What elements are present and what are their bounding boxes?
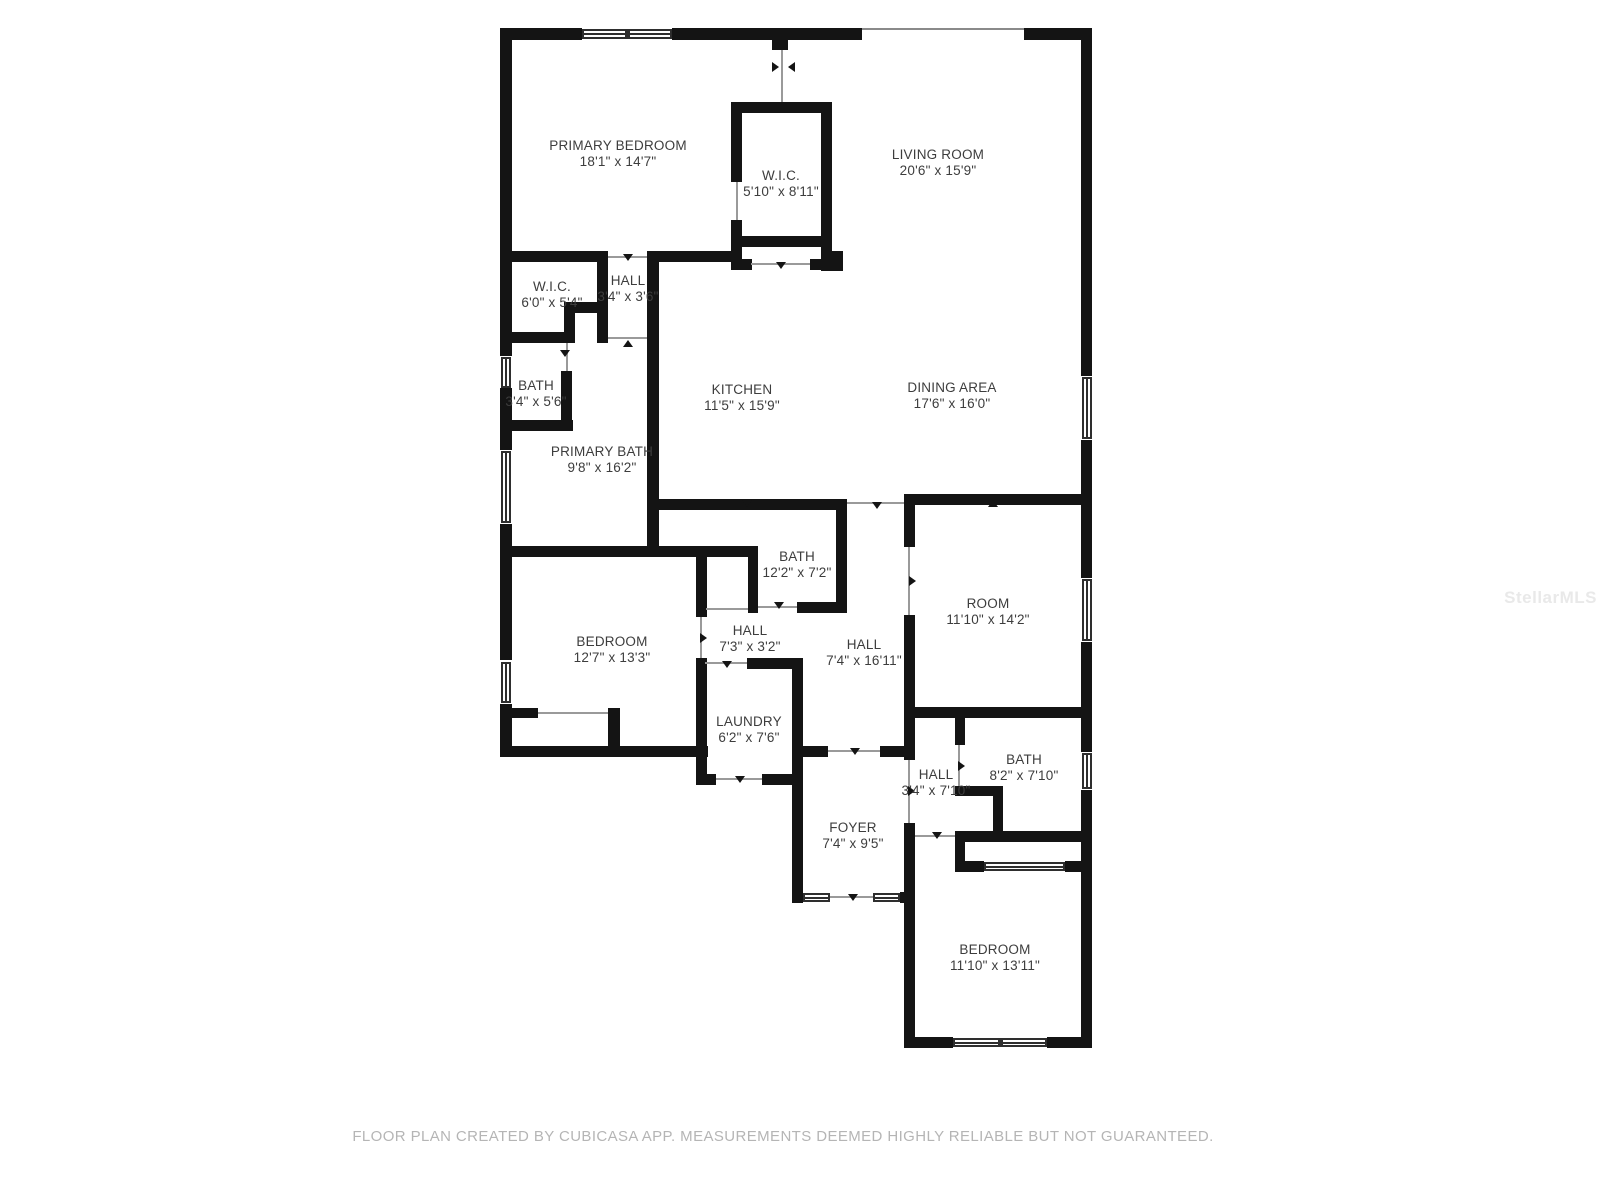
room-dimensions: 8'2" x 7'10" xyxy=(990,768,1059,784)
room-name: BATH xyxy=(763,549,832,565)
room-label-hall-long: HALL7'4" x 16'11" xyxy=(826,637,902,669)
room-label-bath-small: BATH3'4" x 5'6" xyxy=(505,378,566,410)
door-marker xyxy=(774,602,784,609)
wall xyxy=(672,28,862,40)
wall xyxy=(731,236,832,247)
wall xyxy=(647,251,742,262)
room-dimensions: 9'8" x 16'2" xyxy=(551,460,653,476)
room-name: PRIMARY BATH xyxy=(551,444,653,460)
room-name: BEDROOM xyxy=(950,942,1040,958)
room-label-bath-east: BATH8'2" x 7'10" xyxy=(990,752,1059,784)
room-dimensions: 6'0" x 5'4" xyxy=(521,295,582,311)
room-name: FOYER xyxy=(822,820,883,836)
door-opening xyxy=(781,50,783,102)
wall xyxy=(904,494,915,547)
room-dimensions: 6'2" x 7'6" xyxy=(716,730,782,746)
room-label-primary-bedroom: PRIMARY BEDROOM18'1" x 14'7" xyxy=(549,138,687,170)
room-dimensions: 17'6" x 16'0" xyxy=(907,396,996,412)
door-marker xyxy=(909,576,916,586)
door-marker xyxy=(932,832,942,839)
wall xyxy=(500,251,608,262)
wall xyxy=(500,524,512,660)
room-dimensions: 7'3" x 3'2" xyxy=(719,639,780,655)
door-marker xyxy=(788,62,795,72)
door-opening xyxy=(538,712,608,714)
wall xyxy=(1081,440,1092,578)
wall xyxy=(696,658,707,785)
room-name: BEDROOM xyxy=(574,634,651,650)
door-marker xyxy=(623,254,633,261)
door-marker xyxy=(988,500,998,507)
door-marker xyxy=(614,547,624,554)
wall xyxy=(500,708,538,718)
wall xyxy=(1081,790,1092,1048)
wall xyxy=(500,28,582,40)
wall xyxy=(500,746,708,757)
window-icon xyxy=(803,893,830,902)
room-name: ROOM xyxy=(946,596,1029,612)
door-marker xyxy=(872,502,882,509)
room-name: KITCHEN xyxy=(704,382,780,398)
room-dimensions: 3'4" x 7'10" xyxy=(902,783,971,799)
wall xyxy=(1081,642,1092,752)
wall xyxy=(955,707,965,745)
room-label-wic-primary: W.I.C.5'10" x 8'11" xyxy=(743,168,819,200)
door-marker xyxy=(560,350,570,357)
wall xyxy=(696,546,707,617)
room-label-room: ROOM11'10" x 14'2" xyxy=(946,596,1029,628)
wall xyxy=(797,602,847,613)
door-marker xyxy=(735,776,745,783)
room-name: W.I.C. xyxy=(521,279,582,295)
room-dimensions: 5'10" x 8'11" xyxy=(743,184,819,200)
room-name: BATH xyxy=(505,378,566,394)
room-label-bedroom-left: BEDROOM12'7" x 13'3" xyxy=(574,634,651,666)
wall xyxy=(748,547,758,613)
door-marker xyxy=(722,661,732,668)
room-label-wic-small: W.I.C.6'0" x 5'4" xyxy=(521,279,582,311)
room-name: W.I.C. xyxy=(743,168,819,184)
room-label-primary-bath: PRIMARY BATH9'8" x 16'2" xyxy=(551,444,653,476)
wall xyxy=(880,746,904,757)
watermark-stellar-mls: StellarMLS xyxy=(1504,588,1597,608)
wall xyxy=(792,892,803,903)
room-name: HALL xyxy=(902,767,971,783)
door-marker xyxy=(776,262,786,269)
room-dimensions: 12'2" x 7'2" xyxy=(763,565,832,581)
wall xyxy=(904,494,1092,505)
wall xyxy=(803,746,828,757)
wall xyxy=(731,102,742,182)
room-dimensions: 3'4" x 3'6" xyxy=(597,289,658,305)
wall xyxy=(731,102,832,113)
room-label-hall-small: HALL3'4" x 3'6" xyxy=(597,273,658,305)
door-opening xyxy=(736,182,738,220)
wall xyxy=(500,28,512,356)
door-marker xyxy=(623,340,633,347)
window-icon xyxy=(873,893,900,902)
door-marker xyxy=(850,748,860,755)
room-label-foyer: FOYER7'4" x 9'5" xyxy=(822,820,883,852)
wall xyxy=(900,892,915,903)
door-opening xyxy=(566,343,568,371)
wall xyxy=(696,658,705,669)
footer-disclaimer: FLOOR PLAN CREATED BY CUBICASA APP. MEAS… xyxy=(0,1128,1566,1145)
wall xyxy=(608,708,620,751)
room-label-bath-middle: BATH12'2" x 7'2" xyxy=(763,549,832,581)
room-name: LAUNDRY xyxy=(716,714,782,730)
door-opening xyxy=(706,608,748,610)
wall xyxy=(821,251,843,271)
room-dimensions: 20'6" x 15'9" xyxy=(892,163,984,179)
room-name: PRIMARY BEDROOM xyxy=(549,138,687,154)
wall-opening-band xyxy=(862,28,1024,40)
wall xyxy=(955,861,984,872)
door-marker xyxy=(700,633,707,643)
room-dimensions: 3'4" x 5'6" xyxy=(505,394,566,410)
room-dimensions: 18'1" x 14'7" xyxy=(549,154,687,170)
room-label-hall-east: HALL3'4" x 7'10" xyxy=(902,767,971,799)
window-icon xyxy=(501,662,511,703)
room-dimensions: 11'10" x 13'11" xyxy=(950,958,1040,974)
room-label-kitchen: KITCHEN11'5" x 15'9" xyxy=(704,382,780,414)
wall xyxy=(659,499,847,510)
room-name: DINING AREA xyxy=(907,380,996,396)
room-dimensions: 11'10" x 14'2" xyxy=(946,612,1029,628)
room-name: LIVING ROOM xyxy=(892,147,984,163)
window-icon xyxy=(501,451,511,523)
door-opening xyxy=(608,337,647,339)
room-name: HALL xyxy=(719,623,780,639)
room-label-bedroom-bottom: BEDROOM11'10" x 13'11" xyxy=(950,942,1040,974)
wall xyxy=(955,831,1092,842)
wall xyxy=(904,615,915,760)
window-icon xyxy=(1082,753,1092,789)
room-label-hall-center: HALL7'3" x 3'2" xyxy=(719,623,780,655)
window-icon xyxy=(984,862,1065,871)
door-marker xyxy=(848,894,858,901)
room-dimensions: 11'5" x 15'9" xyxy=(704,398,780,414)
wall xyxy=(500,546,758,557)
room-name: HALL xyxy=(597,273,658,289)
door-marker xyxy=(772,62,779,72)
room-name: BATH xyxy=(990,752,1059,768)
room-dimensions: 7'4" x 16'11" xyxy=(826,653,902,669)
room-label-living-room: LIVING ROOM20'6" x 15'9" xyxy=(892,147,984,179)
wall xyxy=(1081,28,1092,376)
floor-plan: PRIMARY BEDROOM18'1" x 14'7"W.I.C.5'10" … xyxy=(0,0,1600,1200)
wall xyxy=(1047,1037,1092,1048)
wall xyxy=(904,823,915,1048)
window-icon xyxy=(1082,579,1092,641)
wall xyxy=(500,420,573,431)
window-icon xyxy=(953,1038,1047,1047)
wall xyxy=(836,499,847,613)
wall xyxy=(904,707,1092,718)
room-label-laundry: LAUNDRY6'2" x 7'6" xyxy=(716,714,782,746)
room-name: HALL xyxy=(826,637,902,653)
wall xyxy=(792,658,803,903)
window-icon xyxy=(582,29,672,39)
wall xyxy=(1065,861,1092,872)
room-label-dining-area: DINING AREA17'6" x 16'0" xyxy=(907,380,996,412)
room-dimensions: 7'4" x 9'5" xyxy=(822,836,883,852)
room-dimensions: 12'7" x 13'3" xyxy=(574,650,651,666)
wall xyxy=(772,28,788,50)
door-marker xyxy=(742,500,752,507)
window-icon xyxy=(1082,377,1092,439)
